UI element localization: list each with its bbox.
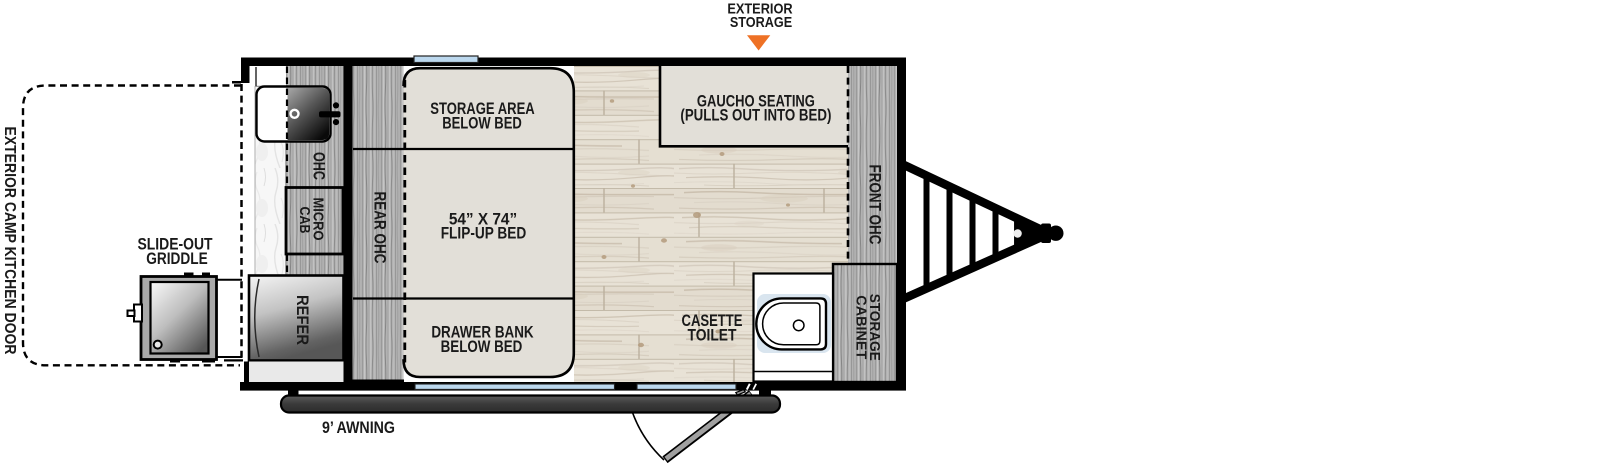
- svg-text:BELOW BED: BELOW BED: [442, 114, 522, 133]
- svg-text:(PULLS OUT INTO BED): (PULLS OUT INTO BED): [680, 106, 831, 125]
- svg-text:EXTERIOR CAMP KITCHEN DOOR: EXTERIOR CAMP KITCHEN DOOR: [1, 127, 18, 355]
- svg-text:CABINET: CABINET: [853, 295, 870, 359]
- svg-text:TOILET: TOILET: [688, 326, 737, 345]
- svg-text:CAB: CAB: [296, 207, 313, 234]
- svg-text:BELOW BED: BELOW BED: [441, 337, 523, 356]
- svg-text:GRIDDLE: GRIDDLE: [146, 249, 208, 268]
- svg-text:REAR OHC: REAR OHC: [371, 192, 390, 264]
- svg-text:OHC: OHC: [310, 152, 329, 180]
- svg-text:STORAGE: STORAGE: [730, 14, 792, 31]
- svg-text:FRONT OHC: FRONT OHC: [866, 165, 885, 245]
- svg-text:9’ AWNING: 9’ AWNING: [322, 418, 395, 437]
- svg-text:FLIP-UP BED: FLIP-UP BED: [441, 224, 527, 243]
- svg-text:REFER: REFER: [293, 295, 311, 345]
